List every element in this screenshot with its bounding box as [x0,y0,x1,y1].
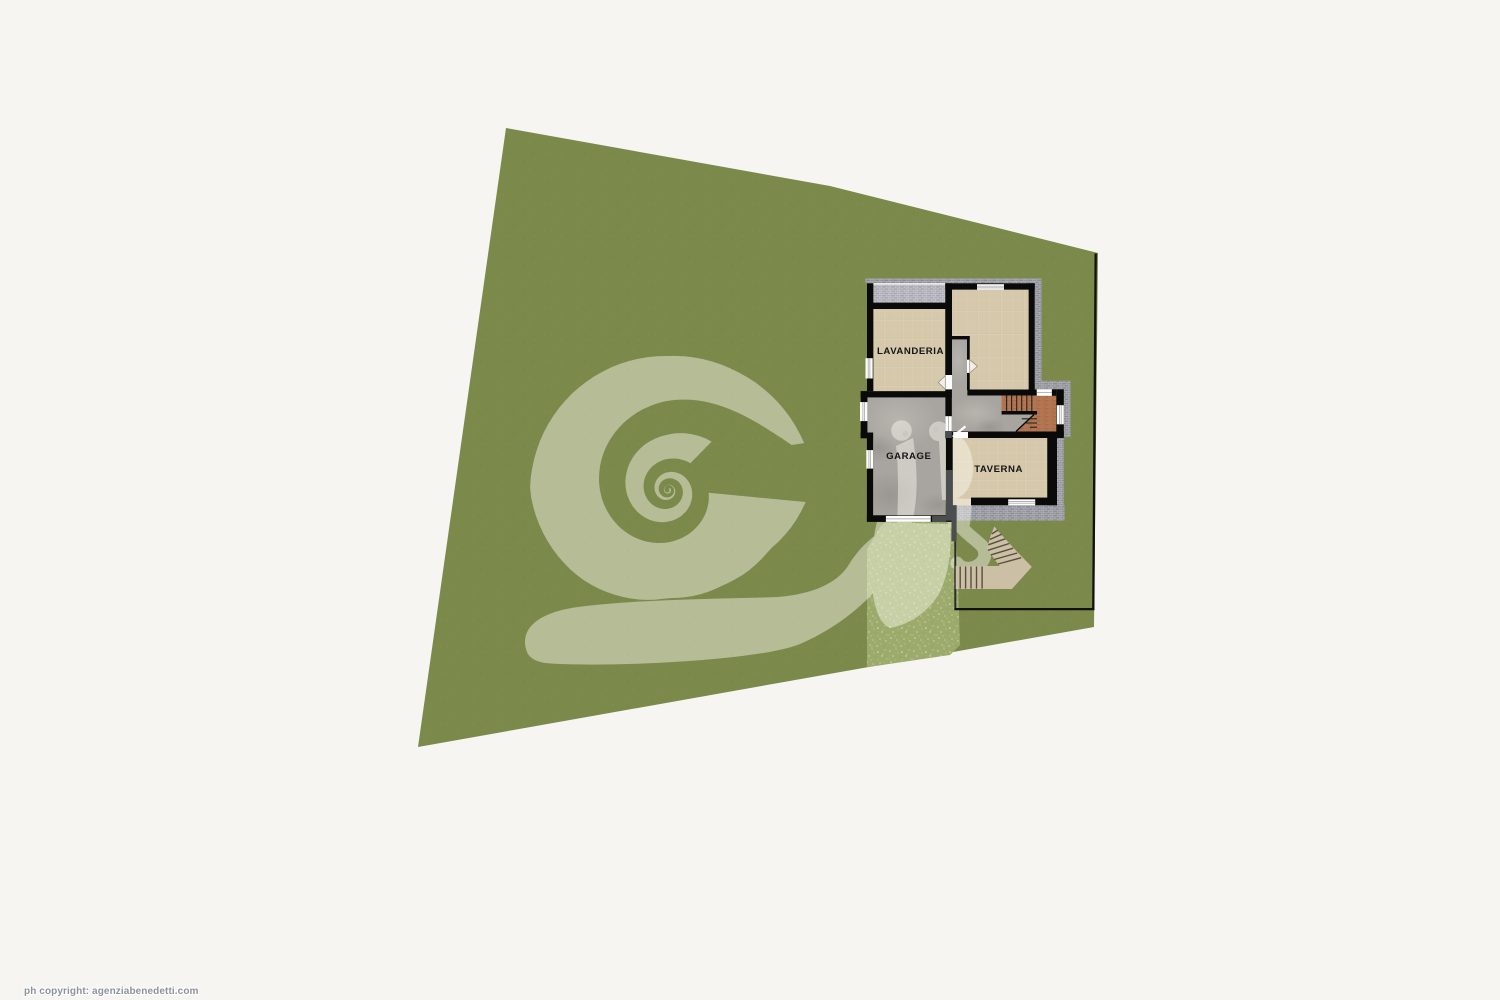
svg-text:TAVERNA: TAVERNA [974,464,1023,475]
svg-text:ph copyright: agenziabenedetti: ph copyright: agenziabenedetti.com [24,986,199,997]
svg-text:LAVANDERIA: LAVANDERIA [877,346,944,357]
svg-text:GARAGE: GARAGE [886,451,931,462]
